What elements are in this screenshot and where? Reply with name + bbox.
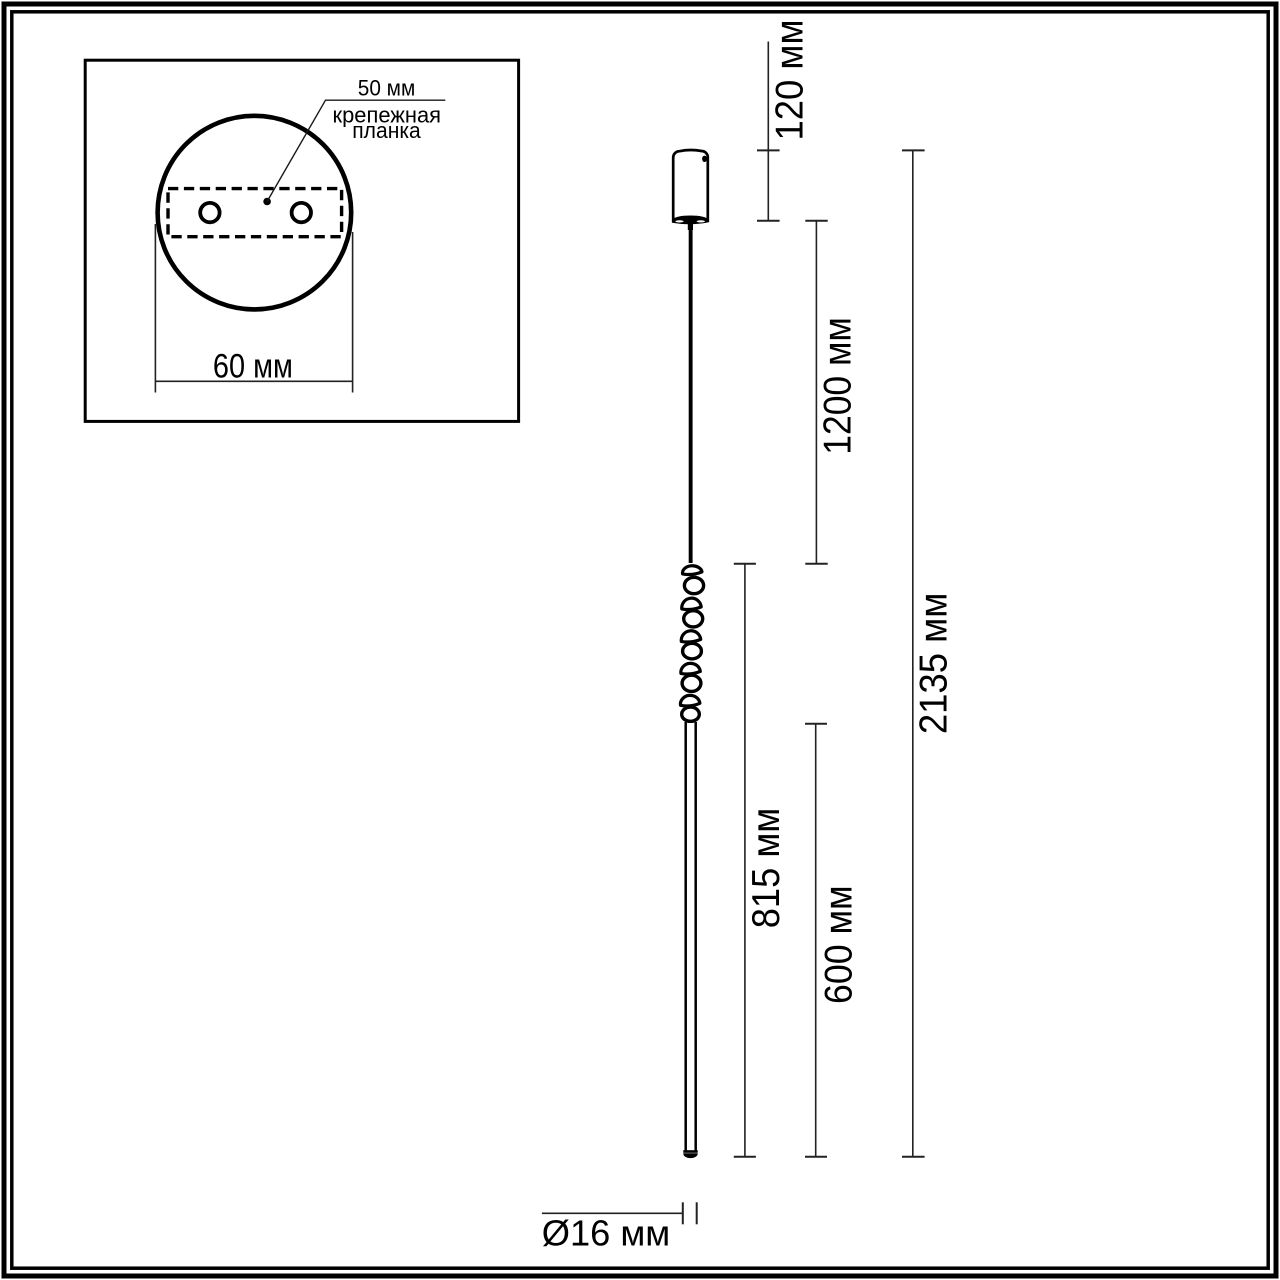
svg-text:60 мм: 60 мм — [213, 347, 293, 385]
svg-text:50 мм: 50 мм — [358, 76, 416, 101]
svg-text:815 мм: 815 мм — [745, 808, 788, 929]
svg-text:планка: планка — [352, 118, 421, 143]
svg-text:600 мм: 600 мм — [817, 885, 860, 1004]
svg-text:2135 мм: 2135 мм — [912, 593, 955, 735]
svg-text:1200 мм: 1200 мм — [817, 317, 860, 455]
svg-text:Ø16 мм: Ø16 мм — [542, 1213, 671, 1253]
svg-text:120 мм: 120 мм — [769, 20, 812, 141]
